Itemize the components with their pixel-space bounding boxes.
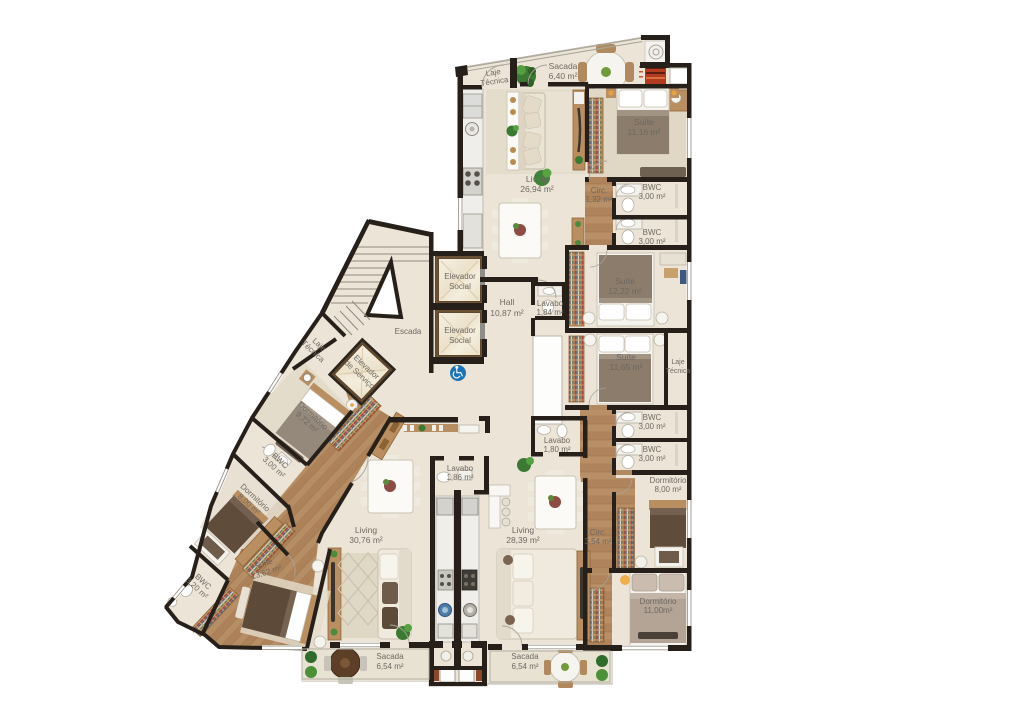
svg-text:Sacada6,40 m²: Sacada6,40 m²: [549, 61, 578, 81]
svg-text:Lavabo1,80 m²: Lavabo1,80 m²: [543, 436, 570, 454]
svg-text:Lavabo1,86 m²: Lavabo1,86 m²: [446, 464, 473, 482]
svg-text:Dormitório11,00m²: Dormitório11,00m²: [640, 597, 677, 615]
svg-text:Dormitório8,00 m²: Dormitório8,00 m²: [650, 476, 687, 494]
svg-text:Escada: Escada: [395, 327, 422, 336]
svg-text:Lavabo1,84 m²: Lavabo1,84 m²: [536, 299, 563, 317]
svg-text:Sacada6,54 m²: Sacada6,54 m²: [511, 652, 539, 671]
svg-text:Sacada6,54 m²: Sacada6,54 m²: [376, 652, 404, 671]
